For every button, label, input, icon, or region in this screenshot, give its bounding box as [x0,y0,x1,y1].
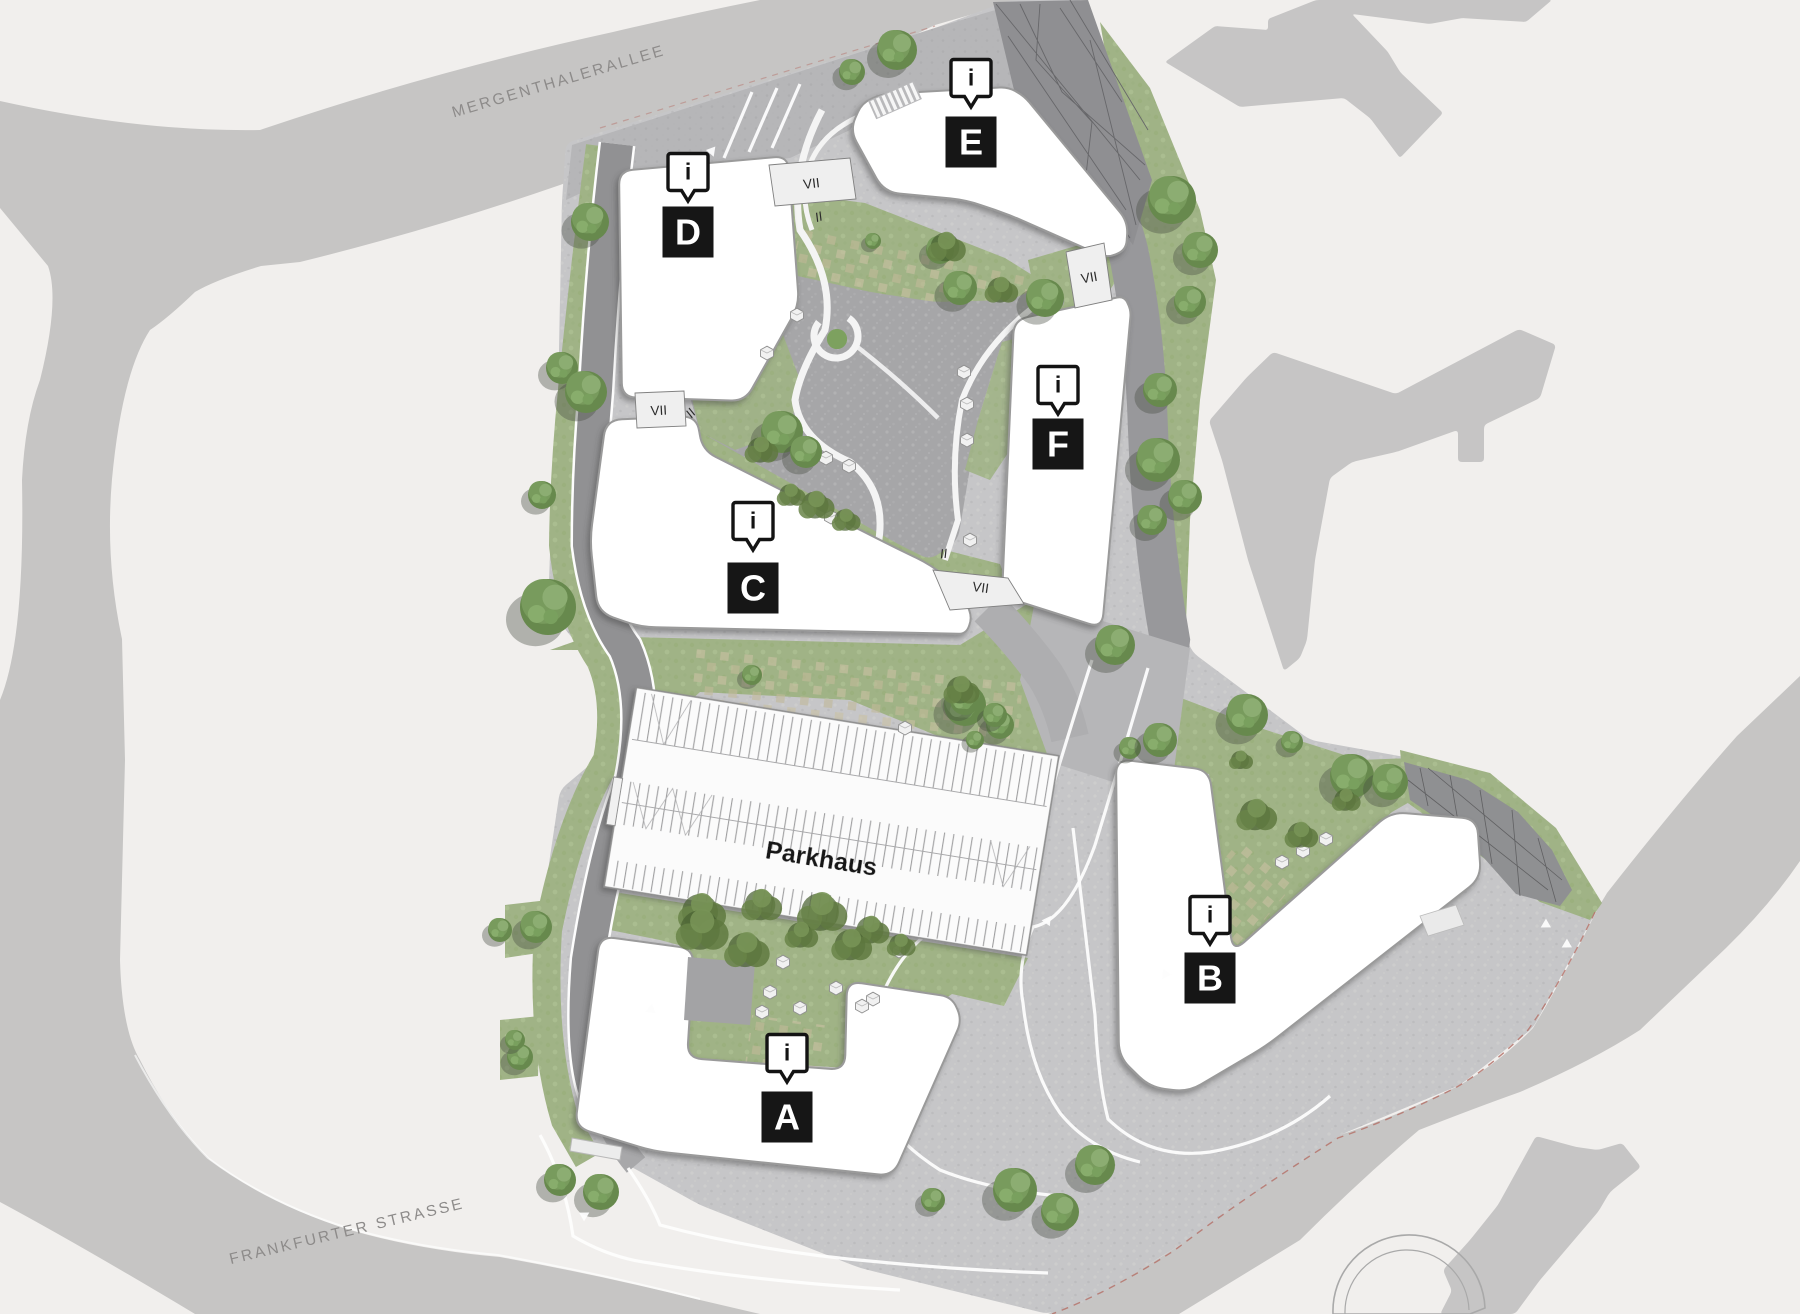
svg-text:C: C [740,568,766,609]
svg-text:i: i [685,159,691,185]
svg-text:i: i [968,65,974,91]
svg-text:VII: VII [1080,269,1099,287]
svg-text:VII: VII [650,403,667,419]
svg-text:A: A [774,1097,800,1138]
svg-text:B: B [1197,958,1223,999]
svg-text:VII: VII [802,175,820,192]
svg-text:i: i [1055,372,1061,398]
svg-text:i: i [1207,902,1213,928]
svg-text:i: i [750,508,756,534]
svg-text:i: i [784,1040,790,1066]
svg-text:E: E [959,122,983,163]
svg-text:D: D [675,212,701,253]
svg-text:F: F [1047,424,1069,465]
svg-text:VII: VII [971,579,989,596]
